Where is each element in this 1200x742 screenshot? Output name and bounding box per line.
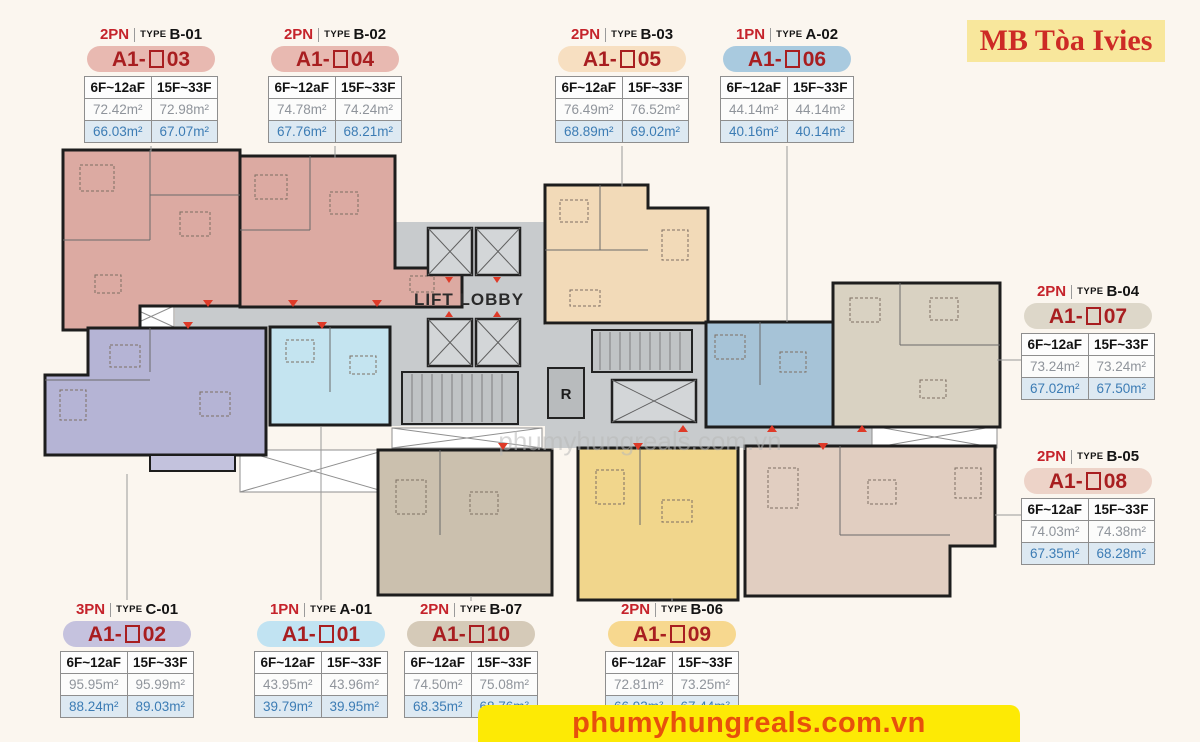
unit-name-pill: A1-09 (608, 621, 736, 647)
area-net: 67.07m² (151, 121, 218, 143)
unit-name-pill: A1-07 (1024, 303, 1152, 329)
area-net: 39.95m² (321, 696, 388, 718)
floor-range: 15F~33F (127, 652, 194, 674)
divider (318, 28, 319, 42)
divider (1071, 285, 1072, 299)
unit-name-pill: A1-02 (63, 621, 191, 647)
divider (110, 603, 111, 617)
floor-range: 15F~33F (787, 77, 854, 99)
type-word: TYPE (310, 604, 336, 615)
area-gross: 75.08m² (471, 674, 538, 696)
area-net: 39.79m² (255, 696, 322, 718)
unit-prefix: A1- (88, 624, 122, 645)
unit-label-a1-07: 2PNTYPEB-04 A1-07 6F~12aF15F~33F 73.24m²… (1021, 283, 1155, 400)
area-gross: 74.38m² (1088, 521, 1155, 543)
unit-a1-07 (833, 283, 1000, 427)
type-code: B-07 (490, 601, 523, 618)
area-table: 6F~12aF15F~33F 44.14m²44.14m² 40.16m²40.… (720, 76, 854, 143)
floor-placeholder-box (670, 625, 685, 643)
unit-type-row: 1PNTYPEA-01 (254, 601, 388, 618)
area-gross: 73.24m² (1022, 356, 1089, 378)
unit-type-row: 2PNTYPEB-07 (404, 601, 538, 618)
bedroom-count: 2PN (571, 26, 600, 43)
floor-range: 15F~33F (1088, 499, 1155, 521)
type-code: B-05 (1107, 448, 1140, 465)
area-gross: 72.42m² (85, 99, 152, 121)
bedroom-count: 1PN (736, 26, 765, 43)
type-code: B-01 (170, 26, 203, 43)
unit-type-row: 2PNTYPEB-03 (555, 26, 689, 43)
area-gross: 44.14m² (721, 99, 788, 121)
floor-range: 6F~12aF (556, 77, 623, 99)
unit-label-a1-08: 2PNTYPEB-05 A1-08 6F~12aF15F~33F 74.03m²… (1021, 448, 1155, 565)
area-table: 6F~12aF15F~33F 74.78m²74.24m² 67.76m²68.… (268, 76, 402, 143)
unit-label-a1-03: 2PNTYPEB-01 A1-03 6F~12aF15F~33F 72.42m²… (84, 26, 218, 143)
floor-range: 6F~12aF (61, 652, 128, 674)
floor-range: 6F~12aF (405, 652, 472, 674)
area-gross: 72.81m² (606, 674, 673, 696)
unit-type-row: 2PNTYPEB-06 (605, 601, 739, 618)
unit-prefix: A1- (282, 624, 316, 645)
area-gross: 95.95m² (61, 674, 128, 696)
area-gross: 76.49m² (556, 99, 623, 121)
unit-label-a1-06: 1PNTYPEA-02 A1-06 6F~12aF15F~33F 44.14m²… (720, 26, 854, 143)
unit-type-row: 3PNTYPEC-01 (60, 601, 194, 618)
unit-label-a1-01: 1PNTYPEA-01 A1-01 6F~12aF15F~33F 43.95m²… (254, 601, 388, 718)
page-title: MB Tòa Ivies (967, 20, 1165, 62)
area-gross: 74.50m² (405, 674, 472, 696)
area-gross: 43.95m² (255, 674, 322, 696)
unit-name-pill: A1-05 (558, 46, 686, 72)
unit-number: 02 (143, 624, 166, 645)
bedroom-count: 2PN (621, 601, 650, 618)
unit-type-row: 2PNTYPEB-04 (1021, 283, 1155, 300)
floor-range: 15F~33F (622, 77, 689, 99)
divider (605, 28, 606, 42)
floor-placeholder-box (469, 625, 484, 643)
unit-number: 05 (638, 49, 661, 70)
bedroom-count: 2PN (100, 26, 129, 43)
area-net: 66.03m² (85, 121, 152, 143)
unit-type-row: 2PNTYPEB-01 (84, 26, 218, 43)
area-gross: 74.24m² (335, 99, 402, 121)
floor-placeholder-box (1086, 472, 1101, 490)
refuse-room-label: R (561, 386, 572, 403)
area-net: 40.14m² (787, 121, 854, 143)
unit-prefix: A1- (432, 624, 466, 645)
floor-range: 6F~12aF (1022, 334, 1089, 356)
floor-range: 6F~12aF (1022, 499, 1089, 521)
unit-a1-10 (378, 450, 552, 595)
unit-number: 08 (1104, 471, 1127, 492)
divider (1071, 450, 1072, 464)
area-net: 69.02m² (622, 121, 689, 143)
floor-placeholder-box (125, 625, 140, 643)
unit-number: 09 (688, 624, 711, 645)
unit-prefix: A1- (1049, 471, 1083, 492)
type-code: B-04 (1107, 283, 1140, 300)
area-net: 89.03m² (127, 696, 194, 718)
unit-type-row: 2PNTYPEB-02 (268, 26, 402, 43)
type-word: TYPE (661, 604, 687, 615)
floor-range: 6F~12aF (606, 652, 673, 674)
area-net: 67.35m² (1022, 543, 1089, 565)
area-table: 6F~12aF15F~33F 76.49m²76.52m² 68.89m²69.… (555, 76, 689, 143)
area-table: 6F~12aF15F~33F 43.95m²43.96m² 39.79m²39.… (254, 651, 388, 718)
unit-label-a1-04: 2PNTYPEB-02 A1-04 6F~12aF15F~33F 74.78m²… (268, 26, 402, 143)
floor-range: 15F~33F (471, 652, 538, 674)
divider (134, 28, 135, 42)
divider (655, 603, 656, 617)
bedroom-count: 2PN (420, 601, 449, 618)
unit-a1-02-balcony (150, 455, 235, 471)
unit-number: 03 (167, 49, 190, 70)
unit-label-a1-09: 2PNTYPEB-06 A1-09 6F~12aF15F~33F 72.81m²… (605, 601, 739, 718)
area-net: 67.02m² (1022, 378, 1089, 400)
type-code: B-06 (691, 601, 724, 618)
type-code: A-01 (340, 601, 373, 618)
unit-name-pill: A1-08 (1024, 468, 1152, 494)
type-word: TYPE (1077, 286, 1103, 297)
area-gross: 95.99m² (127, 674, 194, 696)
type-word: TYPE (1077, 451, 1103, 462)
floor-range: 6F~12aF (255, 652, 322, 674)
type-word: TYPE (116, 604, 142, 615)
unit-label-a1-10: 2PNTYPEB-07 A1-10 6F~12aF15F~33F 74.50m²… (404, 601, 538, 718)
area-table: 6F~12aF15F~33F 73.24m²73.24m² 67.02m²67.… (1021, 333, 1155, 400)
floor-placeholder-box (620, 50, 635, 68)
bedroom-count: 2PN (284, 26, 313, 43)
area-gross: 74.78m² (269, 99, 336, 121)
type-code: C-01 (146, 601, 179, 618)
type-word: TYPE (324, 29, 350, 40)
area-table: 6F~12aF15F~33F 95.95m²95.99m² 88.24m²89.… (60, 651, 194, 718)
bedroom-count: 2PN (1037, 283, 1066, 300)
unit-a1-09 (578, 448, 738, 600)
footer-website-banner: phumyhungreals.com.vn (478, 705, 1020, 742)
type-word: TYPE (140, 29, 166, 40)
unit-name-pill: A1-04 (271, 46, 399, 72)
unit-name-pill: A1-01 (257, 621, 385, 647)
type-code: B-03 (641, 26, 674, 43)
area-net: 68.35m² (405, 696, 472, 718)
divider (304, 603, 305, 617)
unit-prefix: A1- (112, 49, 146, 70)
floor-placeholder-box (333, 50, 348, 68)
type-word: TYPE (611, 29, 637, 40)
area-gross: 73.24m² (1088, 356, 1155, 378)
floor-range: 15F~33F (321, 652, 388, 674)
area-net: 67.50m² (1088, 378, 1155, 400)
unit-number: 04 (351, 49, 374, 70)
unit-name-pill: A1-10 (407, 621, 535, 647)
unit-prefix: A1- (296, 49, 330, 70)
area-gross: 73.25m² (672, 674, 739, 696)
unit-a1-05 (545, 185, 708, 323)
unit-prefix: A1- (748, 49, 782, 70)
unit-number: 07 (1104, 306, 1127, 327)
floor-range: 15F~33F (1088, 334, 1155, 356)
type-word: TYPE (460, 604, 486, 615)
floor-placeholder-box (319, 625, 334, 643)
type-word: TYPE (776, 29, 802, 40)
divider (770, 28, 771, 42)
type-code: B-02 (354, 26, 387, 43)
lift-lobby-label: LIFT LOBBY (414, 290, 524, 309)
area-gross: 76.52m² (622, 99, 689, 121)
unit-prefix: A1- (1049, 306, 1083, 327)
type-code: A-02 (806, 26, 839, 43)
bedroom-count: 3PN (76, 601, 105, 618)
plan-watermark: phumyhungreals.com.vn (498, 426, 781, 456)
unit-name-pill: A1-03 (87, 46, 215, 72)
unit-a1-02 (45, 328, 266, 455)
area-gross: 43.96m² (321, 674, 388, 696)
floor-range: 6F~12aF (721, 77, 788, 99)
area-net: 68.89m² (556, 121, 623, 143)
floor-placeholder-box (785, 50, 800, 68)
unit-label-a1-05: 2PNTYPEB-03 A1-05 6F~12aF15F~33F 76.49m²… (555, 26, 689, 143)
area-net: 68.28m² (1088, 543, 1155, 565)
floor-placeholder-box (1086, 307, 1101, 325)
unit-prefix: A1- (633, 624, 667, 645)
unit-type-row: 2PNTYPEB-05 (1021, 448, 1155, 465)
area-gross: 72.98m² (151, 99, 218, 121)
unit-prefix: A1- (583, 49, 617, 70)
area-gross: 44.14m² (787, 99, 854, 121)
bedroom-count: 1PN (270, 601, 299, 618)
floor-range: 15F~33F (151, 77, 218, 99)
area-table: 6F~12aF15F~33F 72.42m²72.98m² 66.03m²67.… (84, 76, 218, 143)
area-gross: 74.03m² (1022, 521, 1089, 543)
area-net: 88.24m² (61, 696, 128, 718)
floor-range: 15F~33F (335, 77, 402, 99)
area-net: 68.21m² (335, 121, 402, 143)
floor-placeholder-box (149, 50, 164, 68)
unit-a1-06 (706, 322, 833, 427)
unit-number: 01 (337, 624, 360, 645)
unit-type-row: 1PNTYPEA-02 (720, 26, 854, 43)
bedroom-count: 2PN (1037, 448, 1066, 465)
floor-range: 6F~12aF (269, 77, 336, 99)
unit-name-pill: A1-06 (723, 46, 851, 72)
area-net: 67.76m² (269, 121, 336, 143)
floor-range: 15F~33F (672, 652, 739, 674)
unit-number: 10 (487, 624, 510, 645)
unit-label-a1-02: 3PNTYPEC-01 A1-02 6F~12aF15F~33F 95.95m²… (60, 601, 194, 718)
unit-number: 06 (803, 49, 826, 70)
divider (454, 603, 455, 617)
area-table: 6F~12aF15F~33F 74.03m²74.38m² 67.35m²68.… (1021, 498, 1155, 565)
floor-range: 6F~12aF (85, 77, 152, 99)
area-net: 40.16m² (721, 121, 788, 143)
